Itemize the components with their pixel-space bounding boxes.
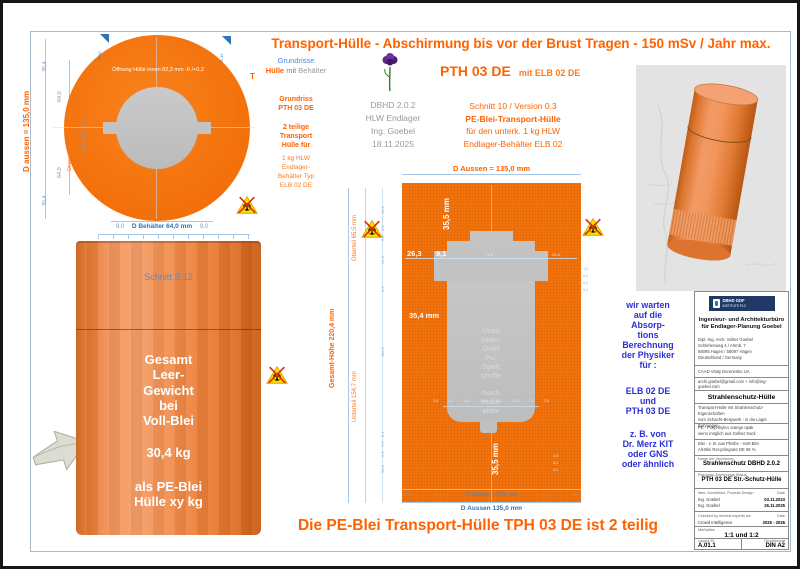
page-title: Transport-Hülle - Abschirmung bis vor de… xyxy=(253,36,789,51)
meta-line: 18.11.2025 xyxy=(353,138,433,151)
logo-text-2: INSTITUTE PLC xyxy=(723,304,747,309)
description-2: PE - Polyethylen orange opakwenn möglich… xyxy=(695,423,788,439)
cylinder-3d-render xyxy=(636,65,786,291)
layout-print-row: Layout ID A.01.1 Druckformat DIN A2 xyxy=(695,538,788,549)
d-aussen-bottom-label: D Aussen 135,0 mm xyxy=(402,505,581,512)
subtitle-line: Schnitt 10 / Version 0.3 xyxy=(431,100,595,113)
legend-block-teilig: 2 teiligeTransportHülle für xyxy=(257,123,335,150)
print-format-value: DIN A2 xyxy=(766,543,785,549)
behaelter-notch xyxy=(196,122,211,134)
note-line: ELB 02 DE xyxy=(602,386,694,396)
description-3: Blei - z. B. aus PbSb4 - Hart-BleiAlt-Bl… xyxy=(695,439,788,455)
note-line: für : xyxy=(602,360,694,370)
firm-line: für Endlager-Planung Goebel xyxy=(698,324,785,332)
content-line: Uran- xyxy=(447,335,535,344)
dimension-value: 1,0 xyxy=(553,453,558,460)
weight-line: Hülle xy kg xyxy=(76,494,261,509)
dimension-value: 110,3 xyxy=(380,347,385,357)
bottom-dimension-row: 35,4 0,1 D Behälter = 64,0 mm 0,1 35,4 xyxy=(402,492,581,498)
dimension-value: 0,2 xyxy=(583,287,588,294)
d-behaelter-label: D Behälter = 64,0 mm xyxy=(466,492,517,498)
content-line: stoffe xyxy=(447,371,535,380)
dimension-value: 71,6 xyxy=(485,252,493,257)
radiation-warning-icon: ☢ xyxy=(236,195,258,215)
dimension-value: 33,4 xyxy=(380,465,385,473)
contact-email: archi.goebel@gmail.com + info@ing-goebel… xyxy=(695,377,788,390)
weight-value: 30,4 kg xyxy=(76,445,261,460)
drawing-name-row: Name der Zeichnung Strahlenschutz DBHD 2… xyxy=(695,455,788,472)
subtitle-line: Endlager-Behälter ELB 02 xyxy=(431,138,595,151)
content-line: Pu, xyxy=(447,353,535,362)
note-line: oder GNS xyxy=(602,449,694,459)
note-line: und xyxy=(602,396,694,406)
desc-line: wenn möglich aus Gelber Sack xyxy=(698,431,785,437)
dimension-value: 35,5 mm xyxy=(491,443,500,475)
content-line: hoch xyxy=(447,388,535,397)
d-innen-label: Dinnen 64,2 mm -0 / +0,2 xyxy=(67,109,73,171)
dimension-value: 0,2 xyxy=(553,460,558,467)
dim-line xyxy=(443,406,539,407)
behaelter-bottom-pin xyxy=(480,421,497,433)
section-flag-icon xyxy=(100,34,109,43)
layout-id-value: A.01.1 xyxy=(698,543,738,549)
dimension-value: 64,0 xyxy=(57,91,63,102)
dimension-value: 24,3 xyxy=(380,256,385,264)
note-line: tions xyxy=(602,330,694,340)
section-flag-label: S-12 xyxy=(219,54,224,62)
d-aussen-label: D aussen = 135,0 mm xyxy=(22,91,31,172)
legend-mit: mit xyxy=(286,66,296,75)
small-dimension-row: 2,97,114,515,50,114,57,12,9 xyxy=(433,399,549,403)
legend-block-behaelter: 1 kg HLWEndlager-Behälter TypELB 02 DE xyxy=(257,154,335,190)
content-line: Uran xyxy=(447,326,535,335)
note-line: z. B. von xyxy=(602,429,694,439)
schnitt-label: Schnitt S 12 xyxy=(76,272,261,282)
legend-line: ELB 02 DE xyxy=(257,181,335,190)
firm-name: Ingenieur- und Architekturbürofür Endlag… xyxy=(695,316,788,336)
legend-huelle: Hülle xyxy=(266,66,284,75)
weight-line: als PE-Blei xyxy=(76,479,261,494)
legend-line: Hülle mit Behälter xyxy=(251,66,341,75)
dim-line xyxy=(111,221,213,222)
drawing-name-value: Strahlenschutz DBHD 2.0.2 xyxy=(698,461,785,467)
print-format-cell: Druckformat DIN A2 xyxy=(741,539,788,549)
meta-line: Ing. Goebel xyxy=(353,125,433,138)
layout-id-cell: Layout ID A.01.1 xyxy=(695,539,741,549)
dimension-value: 35,4 xyxy=(402,492,411,498)
weight-text: GesamtLeer-GewichtbeiVoll-Blei xyxy=(76,352,261,428)
legend-line: 1 kg HLW xyxy=(257,154,335,163)
dimension-value: 2,9 xyxy=(433,399,438,403)
weight-line: Gewicht xyxy=(76,383,261,398)
note-paragraph: z. B. vonDr. Merz KIToder GNSoder ähnlic… xyxy=(602,429,694,469)
note-line: auf die xyxy=(602,310,694,320)
legend-block-grundriss: GrundrissPTH 03 DE xyxy=(257,95,335,113)
dimension-value: 0,2 xyxy=(380,286,385,292)
unterteil-label: Unterteil 154,7 mm xyxy=(352,371,358,422)
dimension-value: 0,1 xyxy=(435,492,441,498)
dimension-value: 64,0 xyxy=(57,167,63,178)
project-meta: DBHD 2.0.2HLW EndlagerIng. Goebel18.11.2… xyxy=(353,99,433,151)
right-small-dimensions: 1,00,20,2 xyxy=(553,453,558,474)
dimension-value: 14,5 xyxy=(463,399,470,403)
status-row: Planungs-Zeichnungs Status PTH 03 DE Str… xyxy=(695,471,788,488)
dim-line xyxy=(348,188,349,503)
pe-weight-text: als PE-BleiHülle xy kg xyxy=(76,479,261,510)
dimension-value: 33,4 xyxy=(380,206,385,214)
dbhd-logo-icon xyxy=(713,299,720,308)
render-panel xyxy=(636,65,786,291)
section-flag-label: S-10 xyxy=(97,52,102,60)
oberteil-label: Oberteil 65,5 mm xyxy=(352,215,358,261)
weight-line: Gesamt xyxy=(76,352,261,367)
section-flag-icon xyxy=(222,36,231,45)
drawing-sheet: Transport-Hülle - Abschirmung bis vor de… xyxy=(0,0,800,569)
dimension-value: 15,5 xyxy=(480,399,487,403)
firm-address: Dipl.-Ing. Arch. Volker GoebelSchlehenwe… xyxy=(695,336,788,366)
dimension-value: 7,1 xyxy=(448,399,453,403)
content-line: Spalt xyxy=(447,362,535,371)
caad-credit: CAAD Vitaly Dorunenko UA xyxy=(695,365,788,377)
dimension-value: 35,4 mm xyxy=(409,311,439,320)
dimension-value: 35,4 xyxy=(42,195,48,206)
note-line: oder ähnlich xyxy=(602,459,694,469)
note-line: PTH 03 DE xyxy=(602,406,694,416)
dbhd-logo: DBHD GDF INSTITUTE PLC xyxy=(709,296,775,311)
note-line: Dr. Merz KIT xyxy=(602,439,694,449)
dimension-value: 9,0 xyxy=(109,224,131,230)
dimension-value: 2,9 xyxy=(544,399,549,403)
opening-dimension-label: Öffnung Hülle innen 82,3 mm -0 /+0,2 xyxy=(93,67,223,73)
dimension-value: 35,5 mm xyxy=(442,198,451,230)
gesamt-hoehe-label: Gesamt-Höhe 220,4 mm xyxy=(329,309,336,388)
note-line: wir warten xyxy=(602,300,694,310)
dimension-value: 0,2 xyxy=(583,280,588,287)
dimension-value: 0,1 xyxy=(541,492,547,498)
flower-icon xyxy=(380,53,400,93)
note-line: Berechnung xyxy=(602,340,694,350)
status-value: PTH 03 DE Str.-Schutz-Hülle xyxy=(698,477,785,483)
weight-line: Voll-Blei xyxy=(76,413,261,428)
desc-line: Alt-Blei Recyclingrate DE 96 %. xyxy=(698,447,785,453)
bottom-title: Die PE-Blei Transport-Hülle TPH 03 DE is… xyxy=(253,517,703,535)
legend-line: Grundrisse xyxy=(257,56,335,65)
legend-behaelter: Behälter xyxy=(298,66,326,75)
note-line: der Physiker xyxy=(602,350,694,360)
desc-line: Transport-Hülle mit Strahlenschutz-Eigen… xyxy=(698,405,785,417)
meta-line: DBHD 2.0.2 xyxy=(353,99,433,112)
radiation-warning-icon: ☢ xyxy=(361,219,383,239)
note-paragraph: ELB 02 DEundPTH 03 DE xyxy=(602,386,694,416)
dimension-value: 2,9 xyxy=(380,451,385,457)
meta-line: HLW Endlager xyxy=(353,112,433,125)
dim-line xyxy=(402,502,581,503)
logo-row: DBHD GDF INSTITUTE PLC xyxy=(695,292,788,316)
block-heading: Strahlenschutz-Hülle xyxy=(695,390,788,403)
dimension-value: 0,1 xyxy=(380,431,385,437)
dimension-value: 1,0 xyxy=(583,266,588,273)
dim-line xyxy=(98,234,250,239)
cylinder-seam-line xyxy=(76,329,261,330)
note-paragraph: wir wartenauf dieAbsorp-tionsBerechnungd… xyxy=(602,300,694,370)
dimension-value: 9,1 xyxy=(436,249,446,258)
checked-rows: Checked by several experts weDate Crowd … xyxy=(695,511,788,526)
dimension-value: 7,1 xyxy=(380,441,385,447)
legend-line: 2 teilige xyxy=(257,123,335,132)
design-rows: Idee, Architektur, Produkt-DesignDate In… xyxy=(695,488,788,511)
content-line: aktiv xyxy=(447,406,535,415)
title-block: DBHD GDF INSTITUTE PLC Ingenieur- und Ar… xyxy=(694,291,789,550)
d-aussen-top-label: D Aussen = 135,0 mm xyxy=(402,164,581,173)
legend-line: Transport xyxy=(257,132,335,141)
weight-line: bei xyxy=(76,398,261,413)
dimension-value: 35,4 xyxy=(572,492,581,498)
dimension-value: 0,2 xyxy=(583,273,588,280)
design-date: 26.11.2025 xyxy=(764,503,785,510)
subtitle-line: PE-Blei-Transport-Hülle xyxy=(431,113,595,126)
dimension-value: 7,1 xyxy=(529,399,534,403)
note-line: Absorp- xyxy=(602,320,694,330)
drawing-title-suffix: mit ELB 02 DE xyxy=(519,68,581,78)
subtitle-line: für den unterk. 1 kg HLW xyxy=(431,125,595,138)
d-behaelter-label: D Behälter 64,0 mm xyxy=(131,223,193,230)
drawing-subtitle: Schnitt 10 / Version 0.3PE-Blei-Transpor… xyxy=(431,100,595,150)
dimension-value: 35,4 xyxy=(42,61,48,72)
scale-row: Maßstäbe 1:1 und 1:2 xyxy=(695,526,788,538)
dim-line xyxy=(402,174,581,175)
description-1: Transport-Hülle mit Strahlenschutz-Eigen… xyxy=(695,403,788,423)
dimension-value: 26,3 xyxy=(407,249,422,258)
behaelter-circle xyxy=(116,87,198,169)
address-line: Deutschland / Germany xyxy=(698,355,785,361)
legend-line: Hülle für xyxy=(257,141,335,150)
dim-line xyxy=(402,489,581,490)
wall-thickness-label: 7,0 mm -0 / +0,2 xyxy=(81,119,87,159)
radiation-warning-icon: ☢ xyxy=(582,217,604,237)
drawing-title: PTH 03 DE mit ELB 02 DE xyxy=(440,63,620,79)
weight-line: Leer- xyxy=(76,367,261,382)
dimension-value: 14,5 xyxy=(512,399,519,403)
dimension-value: 0,1 xyxy=(497,399,502,403)
legend-line: Grundriss xyxy=(257,95,335,104)
firm-line: Ingenieur- und Architekturbüro xyxy=(698,317,785,325)
legend-line: PTH 03 DE xyxy=(257,104,335,113)
right-small-dimensions: 1,00,20,20,2 xyxy=(583,266,588,294)
container-content-label: UranUran-OxidPu,Spaltstoffe xyxy=(447,326,535,380)
dim-line xyxy=(405,258,577,259)
dimension-value: 26,3 xyxy=(552,252,560,257)
legend-line: Endlager- xyxy=(257,163,335,172)
drawing-title-main: PTH 03 DE xyxy=(440,63,511,79)
dimension-value: 0,2 xyxy=(553,467,558,474)
content-line: Oxid xyxy=(447,344,535,353)
designer-name: Ing. Goebel xyxy=(698,503,720,510)
radiation-warning-icon: ☢ xyxy=(266,365,288,385)
dimension-value: 9,0 xyxy=(193,224,215,230)
legend-line: Behälter Typ xyxy=(257,172,335,181)
